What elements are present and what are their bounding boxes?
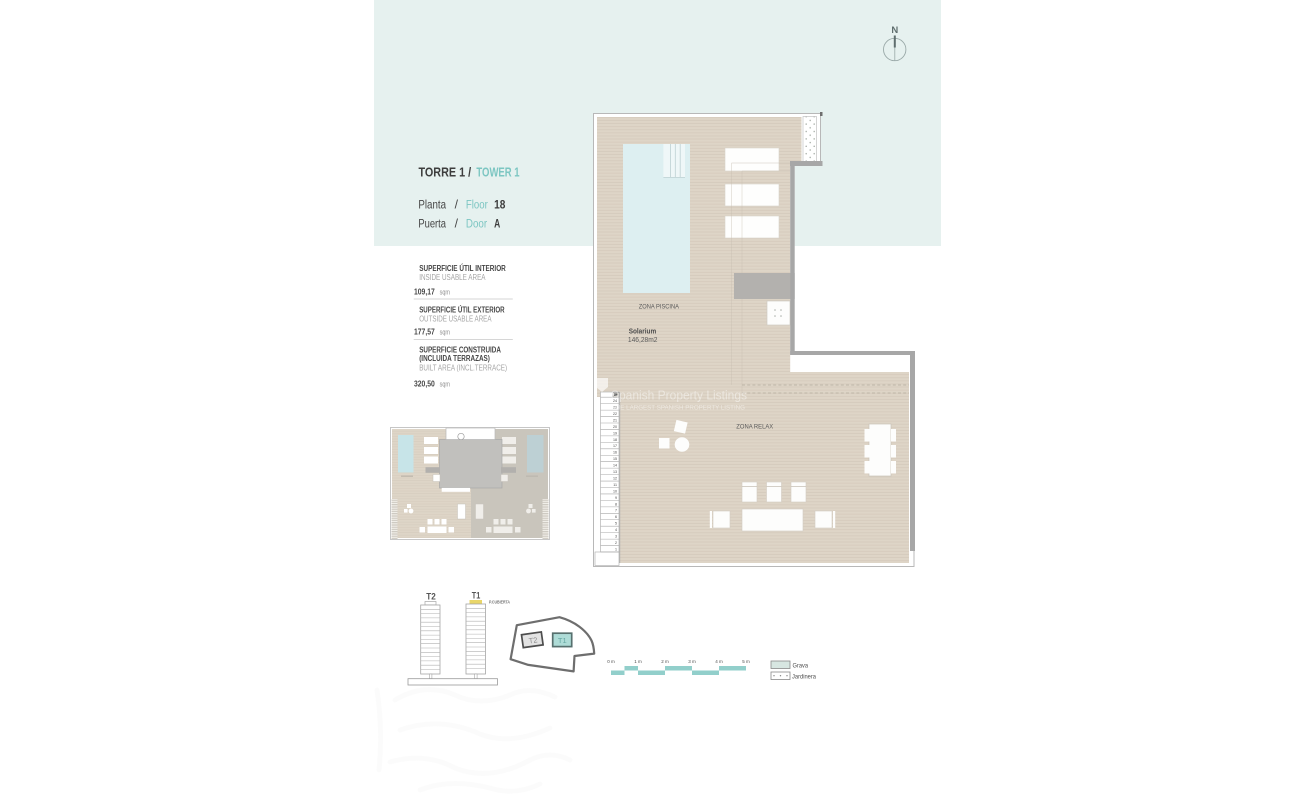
svg-text:5 m: 5 m: [742, 659, 750, 664]
svg-text:19: 19: [613, 431, 617, 435]
svg-text:320,50: 320,50: [414, 380, 435, 389]
svg-text:1: 1: [615, 547, 617, 551]
svg-text:P.CUBIERTA: P.CUBIERTA: [489, 600, 511, 605]
svg-text:18: 18: [613, 438, 617, 442]
svg-text:SUPERFICIE ÚTIL EXTERIOR: SUPERFICIE ÚTIL EXTERIOR: [419, 305, 505, 314]
svg-text:(INCLUIDA TERRAZAS): (INCLUIDA TERRAZAS): [419, 354, 490, 363]
svg-text:13: 13: [613, 470, 617, 474]
svg-text:177,57: 177,57: [414, 327, 435, 336]
svg-text:OUTSIDE USABLE AREA: OUTSIDE USABLE AREA: [419, 315, 492, 324]
svg-text:INSIDE USABLE AREA: INSIDE USABLE AREA: [419, 273, 486, 282]
svg-text:17: 17: [613, 444, 617, 448]
svg-text:sqm: sqm: [440, 380, 450, 389]
svg-text:7: 7: [615, 509, 617, 513]
svg-text:Puerta: Puerta: [418, 217, 446, 231]
svg-text:1 m: 1 m: [634, 659, 642, 664]
svg-text:4 m: 4 m: [715, 659, 723, 664]
svg-text:N: N: [891, 25, 898, 36]
svg-text:T1: T1: [558, 636, 567, 645]
svg-text:5: 5: [615, 522, 617, 526]
svg-text:TORRE 1 /: TORRE 1 /: [419, 165, 472, 179]
svg-text:T2: T2: [426, 592, 436, 602]
svg-text:SUPERFICIE CONSTRUIDA: SUPERFICIE CONSTRUIDA: [419, 345, 501, 354]
svg-text:Jardinera: Jardinera: [792, 674, 816, 681]
svg-text:15: 15: [613, 457, 617, 461]
svg-text:9: 9: [615, 496, 617, 500]
svg-text:sqm: sqm: [440, 288, 450, 297]
svg-text:6: 6: [615, 515, 617, 519]
svg-text:16: 16: [613, 451, 617, 455]
svg-text:Spanish Property Listings: Spanish Property Listings: [611, 388, 747, 403]
svg-text:Solarium: Solarium: [629, 327, 657, 336]
svg-text:18: 18: [494, 198, 505, 212]
svg-text:ZONA PISCINA: ZONA PISCINA: [639, 303, 680, 310]
svg-text:10: 10: [613, 489, 617, 493]
svg-text:2: 2: [615, 541, 617, 545]
svg-text:11: 11: [613, 483, 617, 487]
svg-text:Grava: Grava: [793, 662, 809, 669]
svg-text:109,17: 109,17: [414, 288, 435, 297]
svg-text:12: 12: [613, 476, 617, 480]
svg-text:0 m: 0 m: [607, 659, 615, 664]
svg-text:THE LARGEST SPANISH PROPERTY L: THE LARGEST SPANISH PROPERTY LISTING: [612, 405, 745, 412]
svg-text:Door: Door: [466, 217, 487, 231]
svg-text:sqm: sqm: [440, 327, 450, 336]
svg-text:BUILT AREA (INCL.TERRACE): BUILT AREA (INCL.TERRACE): [419, 363, 507, 372]
svg-text:3: 3: [615, 535, 617, 539]
svg-text:3 m: 3 m: [688, 659, 696, 664]
svg-text:8: 8: [615, 502, 617, 506]
svg-text:TOWER 1: TOWER 1: [476, 165, 519, 179]
svg-text:2 m: 2 m: [661, 659, 669, 664]
svg-text:4: 4: [615, 528, 617, 532]
svg-text:20: 20: [613, 425, 617, 429]
svg-text:14: 14: [613, 464, 617, 468]
svg-text:T2: T2: [528, 635, 538, 645]
svg-text:Floor: Floor: [466, 198, 488, 212]
svg-text:21: 21: [613, 418, 617, 422]
svg-text:A: A: [494, 217, 500, 231]
svg-text:Planta: Planta: [418, 198, 446, 212]
svg-text:22: 22: [613, 412, 617, 416]
svg-text:ZONA RELAX: ZONA RELAX: [736, 423, 773, 430]
svg-text:T1: T1: [472, 591, 481, 601]
svg-text:146,28m2: 146,28m2: [628, 337, 658, 344]
svg-text:SUPERFICIE ÚTIL INTERIOR: SUPERFICIE ÚTIL INTERIOR: [419, 264, 506, 273]
